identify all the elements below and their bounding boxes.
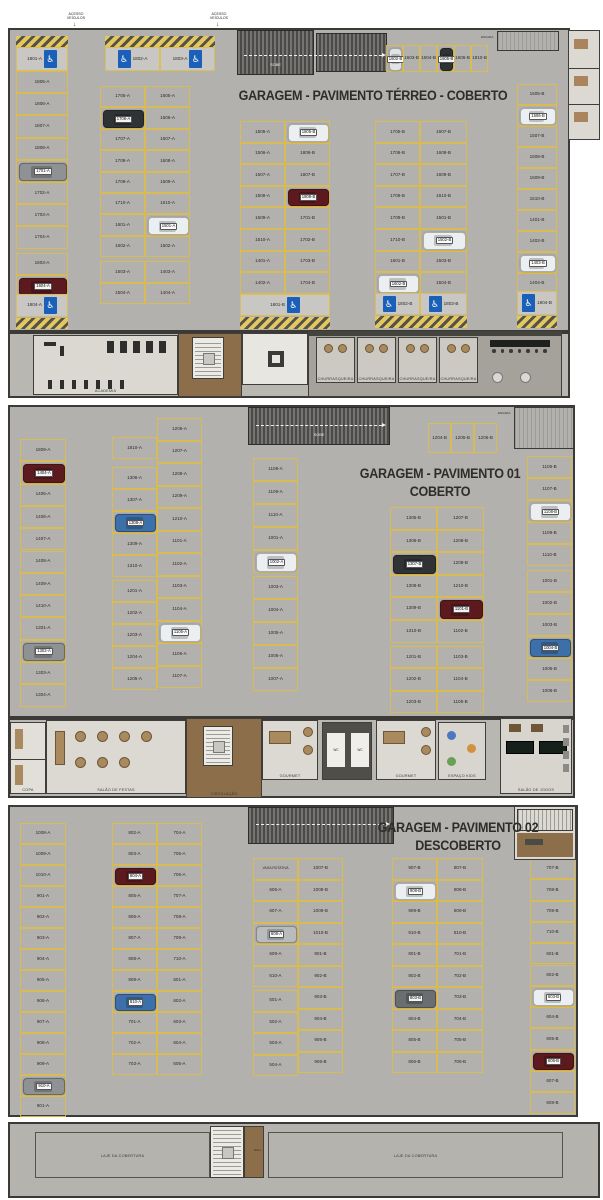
parking-stall: 602-B (530, 965, 575, 986)
deco-table (338, 344, 347, 353)
car-label: 1506-B (529, 113, 547, 120)
deco-table (75, 757, 86, 768)
parking-stall: 704-B (437, 1009, 483, 1031)
parking-stall: 503-A (253, 1033, 298, 1055)
stall-label: 607-A (269, 909, 281, 914)
stall-label: 1303-A (36, 671, 51, 676)
parking-stall: 707-B (530, 858, 575, 879)
parking-stall: 810-B (437, 923, 483, 945)
parking-stall: 1404-A (145, 283, 190, 304)
parking-stall: 605-A (157, 1054, 202, 1075)
room-bar (482, 336, 560, 394)
parking-stall: 1310-B (390, 620, 437, 643)
room-gourmet-1: GOURMET (262, 720, 318, 780)
car: 1403-B (520, 255, 556, 272)
parking-stall: 709-A (157, 928, 202, 949)
deco-equipment (48, 380, 52, 389)
room-hall-elevador (242, 333, 308, 385)
parking-stall: 604-B (530, 1007, 575, 1028)
parking-stall: 1608-B (420, 143, 467, 165)
stall-label: 1808-A (35, 146, 50, 151)
stall-label: 1201-B (406, 655, 421, 660)
stall-label: 910-B (408, 931, 420, 936)
parking-stall: 1110-B (527, 544, 572, 566)
parking-stall: 1710-A (100, 193, 145, 214)
stairs-label: ESCADA (498, 411, 510, 415)
parking-stall: 1206-A (157, 418, 202, 441)
stall-label: 1803-B (444, 302, 459, 307)
ramp (248, 407, 390, 445)
stall-label: 1607-A (160, 137, 175, 142)
stall-label: 604-B (546, 1015, 558, 1020)
parking-stall: 1607-A (145, 129, 190, 150)
hatch-area (16, 36, 68, 47)
parking-stall: 1410-A (20, 595, 66, 617)
parking-stall: 1402-A (240, 272, 285, 294)
stall-label: 1404-B (530, 281, 545, 286)
car-label: 1302-A (35, 648, 53, 655)
stall-label: 1801-A (27, 57, 42, 62)
stall-label: 1204-A (127, 655, 142, 660)
stall-label: 1401-B (530, 218, 545, 223)
parking-stall: 1006-B (527, 680, 572, 702)
stall-label: 1401-A (255, 259, 270, 264)
ramp-label: SOBE (270, 63, 281, 67)
stall-label: 1308-B (406, 584, 421, 589)
stall-label: 1610-A (160, 201, 175, 206)
stall-label: 1301-A (36, 626, 51, 631)
room-espaco-kids: ESPAÇO KIDS (438, 722, 486, 780)
direction-arrow (256, 425, 382, 426)
stall-label: 1707-A (115, 137, 130, 142)
parking-stall: 1308-B (390, 575, 437, 598)
parking-stall: 907-B (392, 858, 437, 880)
parking-stall: 1006-A (253, 645, 298, 668)
stall-label: 1704-B (300, 281, 315, 286)
stall-label: 1607-B (436, 130, 451, 135)
deco-equipment (44, 342, 56, 346)
parking-stall: 1510-B (517, 189, 557, 210)
parking-stall: 1109-B (527, 522, 572, 544)
car: 1701-A (19, 163, 67, 181)
furniture (525, 839, 543, 845)
car-label: 1602-B (390, 281, 408, 288)
wheelchair-icon: ♿ (287, 297, 300, 313)
room-hall-escada (210, 1126, 244, 1178)
stall-label: 503-A (269, 1041, 281, 1046)
stall-label: 1205-A (127, 677, 142, 682)
hatch-area (240, 317, 330, 329)
parking-stall: 906-B (298, 1052, 343, 1074)
parking-stall: 1106-A (157, 643, 202, 666)
car-label: 1701-A (34, 168, 52, 175)
parking-stall: 1403-B (517, 252, 557, 273)
parking-stall: 806-A (112, 907, 157, 928)
stall-label: 1007-B (313, 866, 328, 871)
parking-stall: 1210-B (437, 575, 484, 598)
parking-stall: 902-B (298, 966, 343, 988)
parking-stall: 609-A (253, 944, 298, 966)
parking-stall: 1005-A (253, 622, 298, 645)
room-label: GOURMET (377, 774, 435, 778)
parking-stall: 1007-A (253, 668, 298, 691)
deco-table (447, 344, 456, 353)
stall-label: 1706-B (390, 151, 405, 156)
parking-stall: 603-B (530, 986, 575, 1007)
parking-stall: 1507-B (517, 126, 557, 147)
stall-label: 1805-A (35, 80, 50, 85)
parking-stall: 803-A (112, 844, 157, 865)
stall-label: 1010-B (313, 931, 328, 936)
stall-label: 1110-B (542, 553, 556, 558)
room-label: CHURRASQUEIRA (317, 377, 354, 381)
stall-label: 1209-A (172, 494, 187, 499)
parking-stall: 710-B (530, 922, 575, 943)
parking-stall: 807-B (437, 858, 483, 880)
parking-stall: 1009-B (298, 901, 343, 923)
stall-label: 1508-B (530, 155, 545, 160)
deco-stool (518, 349, 522, 353)
stall-label: 801-B (408, 952, 420, 957)
stall-label: 1601-A (115, 223, 130, 228)
parking-stall: 804-A (112, 865, 157, 886)
car-label: 1706-A (115, 116, 133, 123)
parking-stall: 901-B (298, 944, 343, 966)
stall-label: 804-B (408, 1017, 420, 1022)
parking-stall: 801-A (20, 1096, 66, 1117)
floor-title: GARAGEM - PAVIMENTO TÉRREO - COBERTO (239, 88, 508, 103)
hatch-area (16, 318, 68, 329)
parking-stall: 1706-B (375, 143, 420, 165)
car: 1706-A (103, 110, 144, 127)
car-label: 1501-A (160, 223, 178, 230)
ramp (316, 33, 387, 72)
handicap-stall: ♿1802-B (375, 293, 420, 315)
parking-stall: 906-A (20, 991, 66, 1012)
deco-table (141, 731, 152, 742)
stall-label: 1106-B (542, 465, 556, 470)
stall-label: 1606-B (455, 56, 470, 61)
stall-label: 502-A (269, 1020, 281, 1025)
stall-label: 1504-B (436, 281, 451, 286)
car: 1105-A (160, 624, 201, 643)
stall-label: 808-B (454, 888, 466, 893)
car: 1502-B (423, 232, 466, 250)
stall-label: 1205-B (455, 436, 470, 441)
deco-stool (501, 349, 505, 353)
parking-stall: 1707-A (100, 129, 145, 150)
deco-equipment (96, 380, 100, 389)
stall-label: 708-B (546, 888, 558, 893)
stall-label: 1708-A (115, 159, 130, 164)
car-label: 608-A (269, 931, 284, 938)
parking-stall: 1204-B (428, 423, 451, 453)
parking-stall: 502-A (253, 1012, 298, 1034)
stall-label: 702-A (128, 1041, 140, 1046)
stall-label: 701-A (128, 1020, 140, 1025)
deco-equipment (107, 341, 114, 353)
stall-label: 601-B (546, 952, 558, 957)
parking-stall: 1610-B (420, 186, 467, 208)
parking-stall: 701-B (437, 944, 483, 966)
deco-cabinet (509, 724, 521, 732)
deco-elevator-core (272, 355, 280, 363)
car-label: 1004-B (542, 645, 560, 652)
stall-label: 1806-B (300, 151, 315, 156)
room-label: GOURMET (263, 774, 317, 778)
stall-label: 1210-B (453, 584, 468, 589)
parking-stall: 707-A (157, 886, 202, 907)
parking-stall: 1706-A (100, 107, 145, 128)
deco-stool (535, 349, 539, 353)
parking-stall: 909-B (392, 901, 437, 923)
parking-stall: 808-B (437, 880, 483, 902)
parking-stall: 1104-B (437, 668, 484, 691)
stall-label: 1010-A (36, 873, 51, 878)
deco-long-table (269, 731, 291, 744)
stall-label: 706-B (454, 1060, 466, 1065)
parking-stall: 1710-B (375, 229, 420, 251)
room-wc: WCWC (322, 722, 372, 780)
room-copa: COPA (10, 722, 46, 794)
stall-label: 1309-B (406, 606, 421, 611)
parking-stall: 1109-A (253, 481, 298, 504)
stall-label: 901-A (37, 894, 49, 899)
room-escada-hall (192, 337, 224, 379)
car-label: 1308-A (127, 520, 145, 527)
car: 603-B (533, 989, 574, 1006)
deco-toy (447, 731, 456, 740)
parking-stall: 1309-A (112, 533, 157, 555)
stall-label: 710-A (173, 957, 185, 962)
stall-label: 606-A (269, 888, 281, 893)
stall-label: 1402-B (530, 239, 545, 244)
deco-table (97, 731, 108, 742)
parking-stall: 905-B (298, 1030, 343, 1052)
deco-stool (543, 349, 547, 353)
stall-label: 1709-A (115, 180, 130, 185)
stall-label: 1306-B (406, 539, 421, 544)
deco-table (492, 372, 503, 383)
parking-stall: 1004-B (527, 636, 572, 658)
stall-label: 609-A (269, 952, 281, 957)
parking-stall: 1205-B (451, 423, 474, 453)
stall-label: 1310-A (127, 564, 142, 569)
car-label: 908-B (408, 888, 423, 895)
car: 1302-A (23, 643, 65, 661)
parking-stall: 1407-A (20, 528, 66, 550)
room-label: CHURRASQUEIRA (399, 377, 436, 381)
wc-room: WC (327, 733, 345, 767)
parking-stall: 1309-B (390, 597, 437, 620)
parking-stall: 1010-B (298, 923, 343, 945)
parking-stall: 702-A (112, 1033, 157, 1054)
stall-label: 1203-B (406, 700, 421, 705)
stall-label: 1809-A (36, 448, 51, 453)
car: 1004-B (530, 639, 571, 657)
stall-label: 604-A (173, 1041, 185, 1046)
parking-stall: 605-B (530, 1028, 575, 1049)
deco-table (324, 344, 333, 353)
car: 606-B (533, 1053, 574, 1070)
stall-label: 1604-B (421, 56, 436, 61)
deco-equipment (120, 380, 124, 389)
stall-label: 1104-A (172, 607, 186, 612)
vehicle-access-label-1: ACESSO VEÍCULOS (67, 12, 85, 21)
stall-label: 1201-A (127, 589, 142, 594)
stairs-label: ESCADA (481, 35, 493, 39)
parking-stall: 1003-A (253, 576, 298, 599)
parking-stall: 809-A (112, 970, 157, 991)
ramp (237, 30, 314, 75)
car: 908-B (395, 883, 436, 901)
stall-label: 1804-A (27, 303, 42, 308)
stall-label: 704-B (454, 1017, 466, 1022)
parking-stall: 908-B (392, 880, 437, 902)
stall-label: 1609-B (436, 173, 451, 178)
parking-stall: 1507-A (240, 164, 285, 186)
parking-stall: 1404-A (20, 461, 66, 483)
stall-label: 610-A (269, 974, 281, 979)
deco-table (303, 745, 313, 755)
hatch-area (105, 36, 215, 47)
stall-label: 1802-A (133, 57, 148, 62)
stall-label: 810-B (454, 931, 466, 936)
wheelchair-icon: ♿ (522, 294, 535, 312)
stall-label: 1407-A (36, 537, 51, 542)
stall-label: 1307-A (127, 498, 142, 503)
wheelchair-icon: ♿ (189, 50, 202, 68)
car: 1308-A (115, 514, 156, 532)
deco-table (406, 344, 415, 353)
stall-label: 1503-B (436, 259, 451, 264)
deco-chair (563, 764, 569, 772)
car: 1501-A (148, 217, 189, 234)
stall-label: 1509-A (255, 216, 270, 221)
parking-stall: 1207-A (157, 441, 202, 464)
stall-label: 1507-A (255, 173, 270, 178)
stall-label: 707-A (173, 894, 185, 899)
stairs (514, 407, 574, 449)
stall-label: 1807-A (35, 124, 50, 129)
stall-label: 807-B (454, 866, 466, 871)
room-laje-cobertura-esq: LAJE DA COBERTURA (35, 1132, 210, 1178)
car: 1506-B (520, 108, 556, 125)
parking-stall: 1106-B (527, 456, 572, 478)
parking-stall: 1702-B (285, 229, 330, 251)
stall-label: 1009-A (36, 852, 51, 857)
parking-stall: 1506-B (517, 105, 557, 126)
stall-label: 601-A (173, 978, 185, 983)
stall-label: 1209-B (453, 561, 468, 566)
stall-label: 705-A (173, 852, 185, 857)
parking-stall: 603-A (157, 1012, 202, 1033)
parking-stall: 903-B (298, 987, 343, 1009)
handicap-stall: ♿1804-B (517, 291, 557, 315)
parking-stall: 1606-A (145, 107, 190, 128)
parking-stall: 803-B (392, 987, 437, 1009)
stall-label: 1507-B (530, 134, 545, 139)
stall-label: 707-B (546, 866, 558, 871)
deco-furniture (574, 39, 588, 49)
parking-stall: 1002-A (253, 550, 298, 573)
stall-label: 1602-A (115, 244, 130, 249)
room-hall-madeira (244, 1126, 264, 1178)
car-label: 1307-B (406, 561, 424, 568)
parking-stall: 606-B (530, 1050, 575, 1071)
parking-stall: 706-A (157, 865, 202, 886)
parking-stall: 1301-A (20, 617, 66, 639)
stall-label: 1409-A (36, 582, 51, 587)
stall-label: 602-A (173, 999, 185, 1004)
parking-stall: 1005-B (527, 658, 572, 680)
parking-stall: 1806-A (16, 93, 68, 115)
room-label: LAJE DA COBERTURA (269, 1154, 562, 1158)
parking-stall: 1509-B (517, 168, 557, 189)
stall-label: 1510-B (530, 197, 545, 202)
parking-stall: 1503-B (420, 251, 467, 273)
stall-label: 1705-B (390, 130, 405, 135)
stall-label: 1505-B (530, 92, 545, 97)
room-churrasqueira-3: CHURRASQUEIRA (398, 337, 437, 383)
parking-stall: 1606-B (454, 45, 471, 72)
deco-equipment (72, 380, 76, 389)
ramp (248, 807, 394, 844)
parking-stall: 806-B (392, 1052, 437, 1074)
stall-label: 1005-A (268, 631, 283, 636)
stall-label: 1004-A (268, 608, 283, 613)
stall-label: 1110-A (268, 513, 282, 518)
stall-label: 1405-A (36, 492, 51, 497)
room-gourmet-2: GOURMET (376, 720, 436, 780)
car-label: 1604-A (34, 283, 52, 290)
parking-stall: 705-B (437, 1030, 483, 1052)
stall-label: 1109-B (542, 531, 556, 536)
parking-stall: 705-A (157, 844, 202, 865)
handicap-stall: 1803-A♿ (160, 47, 215, 71)
car-label: 1101-B (453, 606, 470, 613)
parking-stall: 608-A (253, 923, 298, 945)
stall-label: 1008-B (313, 888, 328, 893)
floorplan-canvas: ACESSO VEÍCULOS ↓ ACESSO VEÍCULOS ↓ SOBE… (0, 0, 603, 1200)
stall-label: 1107-B (542, 487, 556, 492)
parking-stall: 1704-B (285, 272, 330, 294)
parking-stall: 902-A (20, 907, 66, 928)
deco-table (303, 727, 313, 737)
parking-stall: 805-B (392, 1030, 437, 1052)
deco-cabinet (531, 724, 543, 732)
parking-stall: 907-A (20, 1012, 66, 1033)
parking-stall: 604-A (157, 1033, 202, 1054)
parking-stall: 1208-B (437, 530, 484, 553)
deco-equipment (159, 341, 166, 353)
wheelchair-icon: ♿ (429, 296, 442, 312)
car-label: 1502-B (436, 237, 454, 244)
stall-label: 809-A (128, 978, 140, 983)
room-escada-circulacao (203, 726, 233, 766)
stall-label: 704-A (173, 831, 185, 836)
parking-stall: 710-A (157, 949, 202, 970)
stall-label: 1710-A (115, 201, 130, 206)
stall-label: 1510-A (255, 238, 270, 243)
deco-table (379, 344, 388, 353)
parking-stall: 1304-A (20, 684, 66, 706)
stall-label: 1704-A (35, 235, 50, 240)
parking-stall: 1704-A (16, 226, 68, 248)
car: 1404-A (23, 464, 65, 482)
parking-stall: 903-A (20, 928, 66, 949)
stall-label: 1203-A (127, 633, 142, 638)
